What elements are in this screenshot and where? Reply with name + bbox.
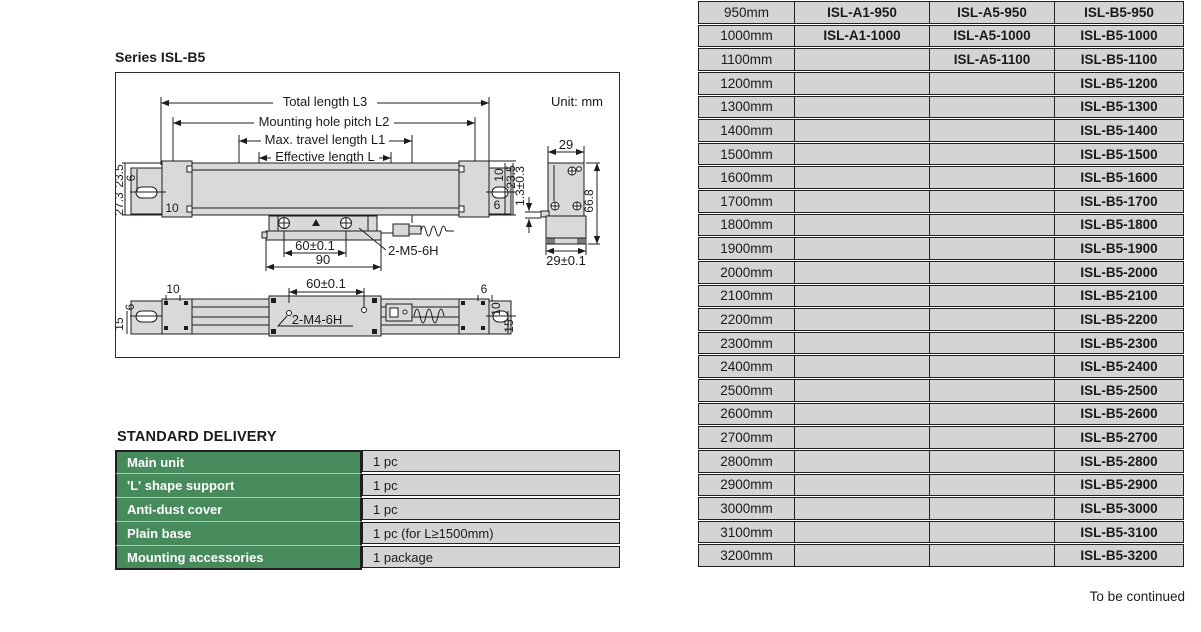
unit-label: Unit: mm — [551, 94, 603, 109]
dim-bottom-left-10: 10 — [166, 282, 180, 296]
delivery-item-cell: Anti-dust cover — [115, 498, 362, 522]
model-isl-b5-cell: ISL-B5-1600 — [1054, 167, 1183, 188]
model-isl-a1-cell: ISL-A1-1000 — [794, 26, 929, 47]
model-isl-b5-cell: ISL-B5-1300 — [1054, 97, 1183, 118]
model-isl-a5-cell: ISL-A5-1000 — [929, 26, 1054, 47]
table-row: 2200mm ISL-B5-2200 — [698, 308, 1184, 331]
dim-slider-90: 90 — [316, 252, 330, 267]
catalog-page: Series ISL-B5 — [0, 0, 1201, 632]
table-row: 3100mm ISL-B5-3100 — [698, 521, 1184, 544]
measuring-length-cell: 1700mm — [699, 191, 794, 212]
model-isl-a5-cell: ISL-A5-1100 — [929, 49, 1054, 70]
dim-front-left-10: 10 — [165, 201, 179, 215]
model-isl-a1-cell — [794, 427, 929, 448]
dim-front-left-27-3: 27.3 — [116, 192, 126, 216]
measuring-length-cell: 3200mm — [699, 545, 794, 566]
dim-front-right-6: 6 — [494, 198, 501, 212]
model-number-table: 950mm ISL-A1-950 ISL-A5-950 ISL-B5-950 1… — [698, 1, 1184, 567]
delivery-item-cell: Plain base — [115, 522, 362, 546]
model-isl-a5-cell — [929, 97, 1054, 118]
model-isl-a1-cell — [794, 356, 929, 377]
model-isl-a1-cell: ISL-A1-950 — [794, 2, 929, 23]
model-isl-a5-cell — [929, 356, 1054, 377]
model-isl-b5-cell: ISL-B5-1500 — [1054, 144, 1183, 165]
table-row: 2500mm ISL-B5-2500 — [698, 379, 1184, 402]
model-isl-b5-cell: ISL-B5-1400 — [1054, 120, 1183, 141]
measuring-length-cell: 1600mm — [699, 167, 794, 188]
measuring-length-cell: 1000mm — [699, 26, 794, 47]
model-isl-a5-cell — [929, 286, 1054, 307]
table-row: 2600mm ISL-B5-2600 — [698, 403, 1184, 426]
standard-delivery-title: STANDARD DELIVERY — [117, 429, 277, 445]
model-isl-b5-cell: ISL-B5-3200 — [1054, 545, 1183, 566]
table-row: 1000mm ISL-A1-1000 ISL-A5-1000 ISL-B5-10… — [698, 25, 1184, 48]
delivery-item-cell: 'L' shape support — [115, 474, 362, 498]
technical-drawing: Total length L3 Mounting hole pitch L2 M… — [116, 73, 619, 357]
measuring-length-cell: 3100mm — [699, 522, 794, 543]
dim-total-length-l3: Total length L3 — [283, 94, 368, 109]
model-isl-a1-cell — [794, 475, 929, 496]
table-row: 2000mm ISL-B5-2000 — [698, 261, 1184, 284]
dim-bottom-left-6: 6 — [123, 303, 137, 310]
standard-delivery-table: Main unit 1 pc 'L' shape support 1 pc An… — [115, 450, 620, 570]
model-isl-a1-cell — [794, 333, 929, 354]
model-isl-a5-cell — [929, 522, 1054, 543]
model-isl-b5-cell: ISL-B5-1100 — [1054, 49, 1183, 70]
model-isl-a5-cell — [929, 73, 1054, 94]
model-isl-a1-cell — [794, 522, 929, 543]
measuring-length-cell: 1900mm — [699, 238, 794, 259]
dim-bottom-right-6: 6 — [481, 282, 488, 296]
model-isl-a5-cell — [929, 475, 1054, 496]
measuring-length-cell: 2400mm — [699, 356, 794, 377]
model-isl-a1-cell — [794, 49, 929, 70]
model-isl-a1-cell — [794, 309, 929, 330]
dim-bottom-60: 60±0.1 — [306, 276, 346, 291]
table-row: 950mm ISL-A1-950 ISL-A5-950 ISL-B5-950 — [698, 1, 1184, 24]
measuring-length-cell: 1800mm — [699, 215, 794, 236]
model-isl-a5-cell — [929, 167, 1054, 188]
dim-side-29-01: 29±0.1 — [546, 253, 586, 268]
dim-front-left-6: 6 — [124, 174, 138, 181]
delivery-item-cell: Main unit — [115, 450, 362, 474]
model-isl-b5-cell: ISL-B5-2600 — [1054, 404, 1183, 425]
measuring-length-cell: 2200mm — [699, 309, 794, 330]
model-isl-a1-cell — [794, 167, 929, 188]
model-isl-a1-cell — [794, 262, 929, 283]
dim-bottom-right-10: 10 — [489, 302, 503, 316]
model-isl-b5-cell: ISL-B5-2400 — [1054, 356, 1183, 377]
model-isl-b5-cell: ISL-B5-1200 — [1054, 73, 1183, 94]
measuring-length-cell: 1500mm — [699, 144, 794, 165]
measuring-length-cell: 2000mm — [699, 262, 794, 283]
table-row: 2800mm ISL-B5-2800 — [698, 450, 1184, 473]
dim-side-29: 29 — [559, 137, 573, 152]
dim-effective-length-l: Effective length L — [275, 149, 375, 164]
model-isl-a5-cell — [929, 451, 1054, 472]
model-isl-b5-cell: ISL-B5-1700 — [1054, 191, 1183, 212]
model-isl-b5-cell: ISL-B5-2900 — [1054, 475, 1183, 496]
table-row: 1100mm ISL-A5-1100 ISL-B5-1100 — [698, 48, 1184, 71]
model-isl-a1-cell — [794, 404, 929, 425]
delivery-item-cell: Mounting accessories — [115, 546, 362, 570]
dim-mounting-pitch-l2: Mounting hole pitch L2 — [259, 114, 390, 129]
table-row: 1700mm ISL-B5-1700 — [698, 190, 1184, 213]
to-be-continued-note: To be continued — [1090, 589, 1185, 604]
measuring-length-cell: 2800mm — [699, 451, 794, 472]
model-isl-a5-cell — [929, 262, 1054, 283]
model-isl-b5-cell: ISL-B5-2700 — [1054, 427, 1183, 448]
table-row: 2400mm ISL-B5-2400 — [698, 355, 1184, 378]
model-isl-a5-cell — [929, 120, 1054, 141]
dim-slider-60: 60±0.1 — [295, 238, 335, 253]
dim-bottom-right-15: 15 — [502, 319, 516, 333]
table-row: 1600mm ISL-B5-1600 — [698, 166, 1184, 189]
table-row: 2100mm ISL-B5-2100 — [698, 285, 1184, 308]
table-row: 1500mm ISL-B5-1500 — [698, 143, 1184, 166]
model-isl-b5-cell: ISL-B5-2000 — [1054, 262, 1183, 283]
measuring-length-cell: 2700mm — [699, 427, 794, 448]
table-row: 1900mm ISL-B5-1900 — [698, 237, 1184, 260]
dim-thread-m5: 2-M5-6H — [388, 243, 439, 258]
model-isl-a5-cell — [929, 545, 1054, 566]
model-isl-a1-cell — [794, 380, 929, 401]
model-isl-a1-cell — [794, 120, 929, 141]
table-row: 2300mm ISL-B5-2300 — [698, 332, 1184, 355]
model-isl-a1-cell — [794, 286, 929, 307]
table-row: 1300mm ISL-B5-1300 — [698, 96, 1184, 119]
delivery-qty-cell: 1 pc (for L≥1500mm) — [362, 522, 620, 546]
table-row: 1400mm ISL-B5-1400 — [698, 119, 1184, 142]
table-row: 3000mm ISL-B5-3000 — [698, 497, 1184, 520]
measuring-length-cell: 950mm — [699, 2, 794, 23]
delivery-qty-cell: 1 pc — [362, 498, 620, 522]
dim-bottom-left-15: 15 — [116, 317, 126, 331]
table-row: 1200mm ISL-B5-1200 — [698, 72, 1184, 95]
model-isl-b5-cell: ISL-B5-950 — [1054, 2, 1183, 23]
dim-side-66-8: 66.8 — [582, 189, 596, 213]
model-isl-a1-cell — [794, 498, 929, 519]
measuring-length-cell: 2500mm — [699, 380, 794, 401]
delivery-qty-cell: 1 pc — [362, 450, 620, 474]
dim-thread-m4: 2-M4-6H — [292, 312, 343, 327]
table-row: 2700mm ISL-B5-2700 — [698, 426, 1184, 449]
model-isl-a5-cell — [929, 238, 1054, 259]
model-isl-b5-cell: ISL-B5-1800 — [1054, 215, 1183, 236]
model-isl-b5-cell: ISL-B5-1900 — [1054, 238, 1183, 259]
measuring-length-cell: 3000mm — [699, 498, 794, 519]
model-isl-a5-cell — [929, 404, 1054, 425]
model-isl-a1-cell — [794, 451, 929, 472]
model-isl-b5-cell: ISL-B5-2500 — [1054, 380, 1183, 401]
model-isl-b5-cell: ISL-B5-2300 — [1054, 333, 1183, 354]
measuring-length-cell: 1200mm — [699, 73, 794, 94]
model-isl-a1-cell — [794, 238, 929, 259]
measuring-length-cell: 2100mm — [699, 286, 794, 307]
dim-max-travel-l1: Max. travel length L1 — [265, 132, 386, 147]
delivery-qty-cell: 1 package — [362, 546, 620, 570]
model-isl-a5-cell — [929, 380, 1054, 401]
measuring-length-cell: 2300mm — [699, 333, 794, 354]
measuring-length-cell: 2600mm — [699, 404, 794, 425]
model-isl-a1-cell — [794, 97, 929, 118]
technical-drawing-box: Total length L3 Mounting hole pitch L2 M… — [115, 72, 620, 358]
model-isl-a1-cell — [794, 545, 929, 566]
model-isl-a1-cell — [794, 215, 929, 236]
delivery-qty-cell: 1 pc — [362, 474, 620, 498]
measuring-length-cell: 1400mm — [699, 120, 794, 141]
model-isl-a5-cell — [929, 498, 1054, 519]
measuring-length-cell: 1300mm — [699, 97, 794, 118]
measuring-length-cell: 1100mm — [699, 49, 794, 70]
model-isl-a5-cell — [929, 144, 1054, 165]
model-isl-a5-cell — [929, 309, 1054, 330]
model-isl-b5-cell: ISL-B5-2200 — [1054, 309, 1183, 330]
model-isl-a5-cell — [929, 191, 1054, 212]
model-isl-a5-cell — [929, 215, 1054, 236]
model-isl-a5-cell — [929, 333, 1054, 354]
series-title: Series ISL-B5 — [115, 49, 205, 65]
model-isl-a1-cell — [794, 144, 929, 165]
model-isl-b5-cell: ISL-B5-2800 — [1054, 451, 1183, 472]
model-isl-a5-cell — [929, 427, 1054, 448]
model-isl-a1-cell — [794, 191, 929, 212]
model-isl-b5-cell: ISL-B5-2100 — [1054, 286, 1183, 307]
dim-side-1-3: 1.3±0.3 — [513, 166, 527, 206]
model-isl-a1-cell — [794, 73, 929, 94]
model-isl-b5-cell: ISL-B5-3000 — [1054, 498, 1183, 519]
model-isl-b5-cell: ISL-B5-3100 — [1054, 522, 1183, 543]
model-isl-b5-cell: ISL-B5-1000 — [1054, 26, 1183, 47]
table-row: 2900mm ISL-B5-2900 — [698, 474, 1184, 497]
table-row: 3200mm ISL-B5-3200 — [698, 544, 1184, 567]
measuring-length-cell: 2900mm — [699, 475, 794, 496]
model-isl-a5-cell: ISL-A5-950 — [929, 2, 1054, 23]
table-row: 1800mm ISL-B5-1800 — [698, 214, 1184, 237]
